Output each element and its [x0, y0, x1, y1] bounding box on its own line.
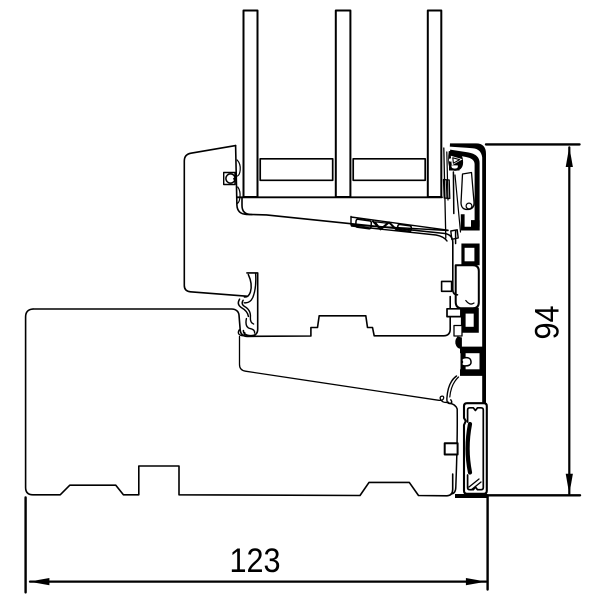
svg-text:94: 94: [528, 305, 566, 339]
svg-text:123: 123: [230, 542, 281, 580]
